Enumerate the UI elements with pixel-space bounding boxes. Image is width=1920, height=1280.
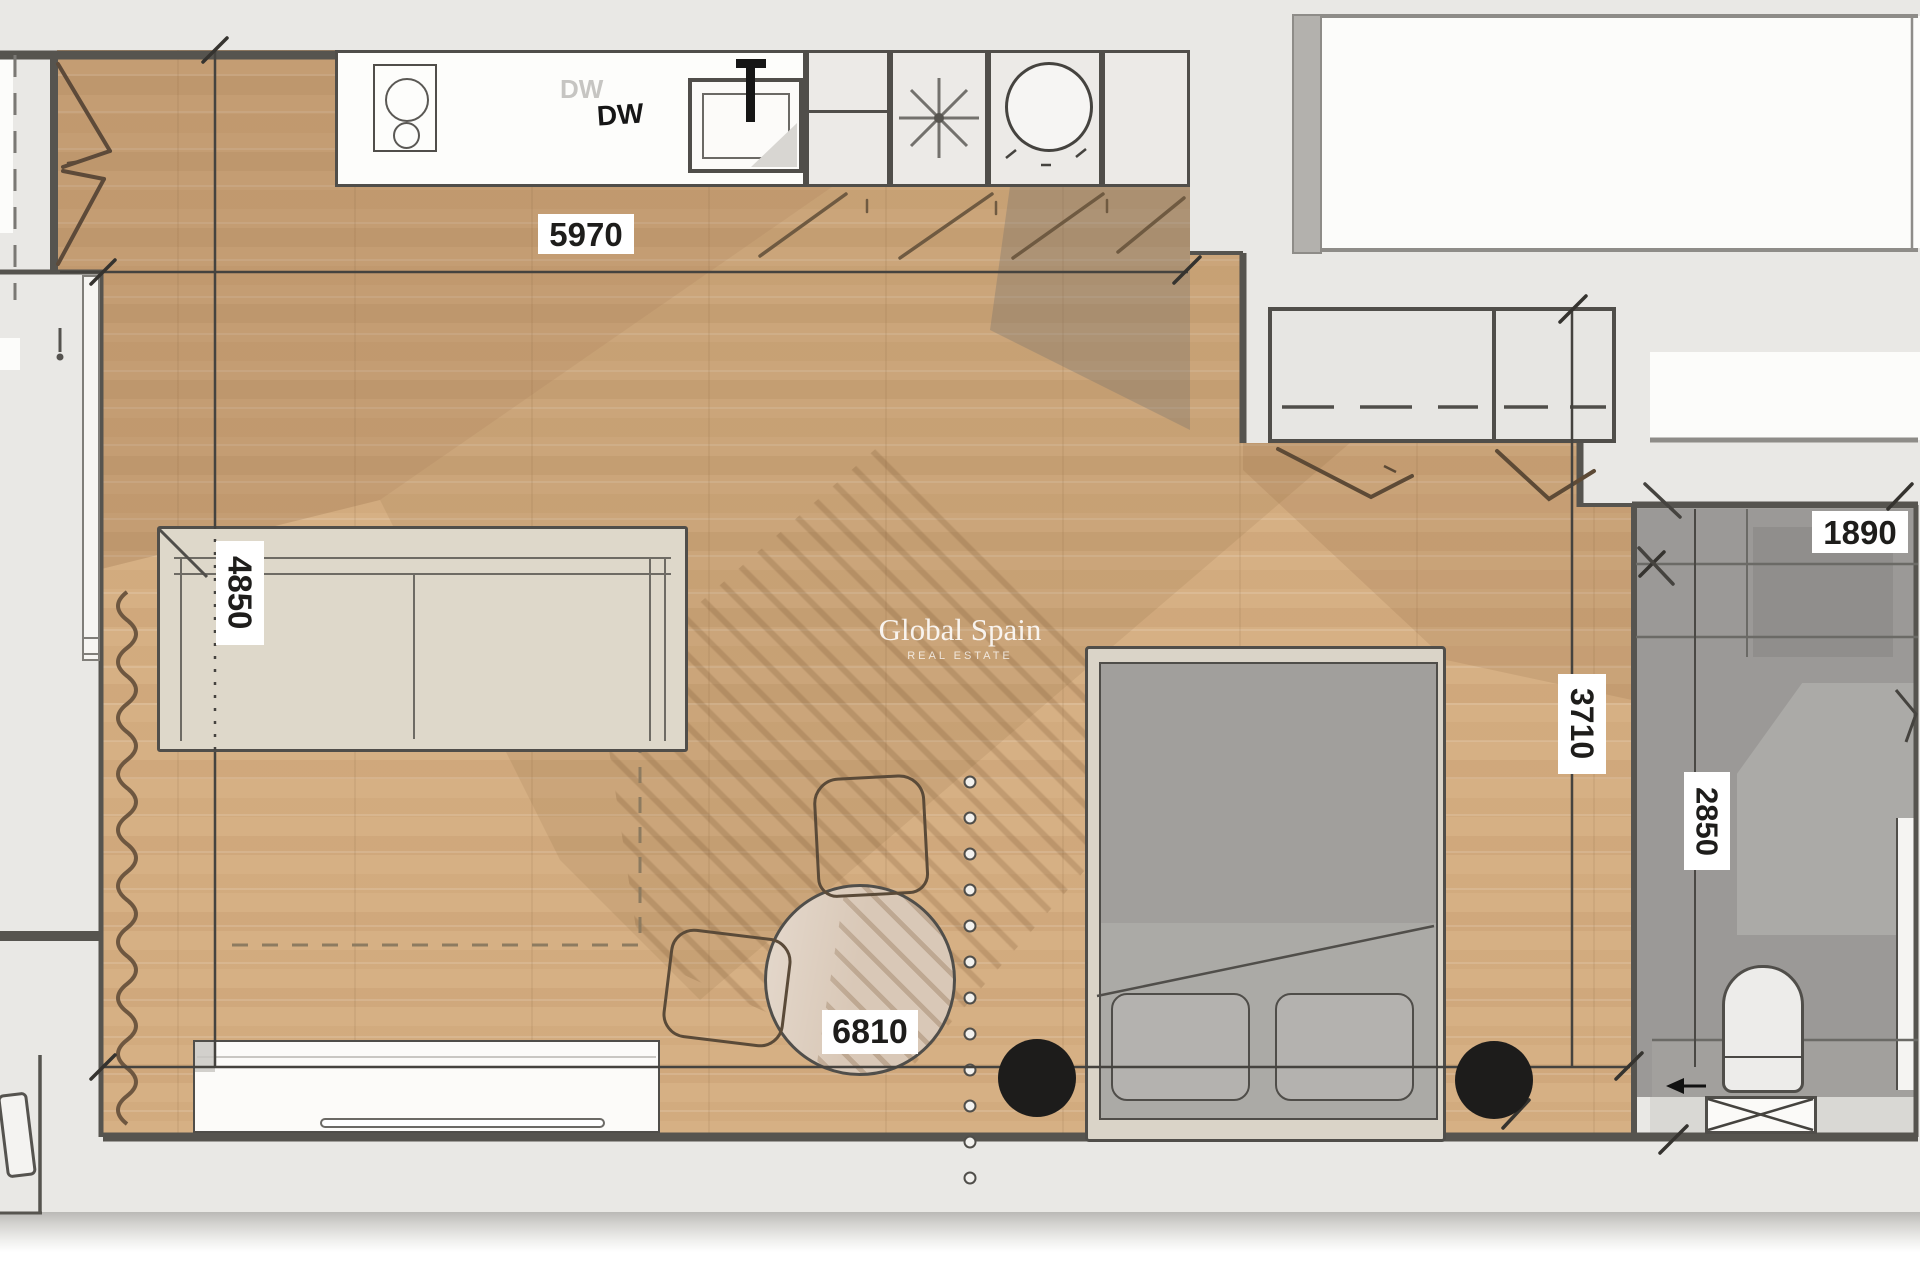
dimension-label-1890: 1890 [1812,511,1908,553]
dimension-label-4850: 4850 [216,541,264,645]
dimension-label-2850: 2850 [1684,772,1730,870]
dimension-label-6810: 6810 [822,1010,918,1054]
pouf-stool [1455,1041,1533,1119]
dimension-label-3710: 3710 [1558,674,1606,774]
floor-plan: 5970 4850 6810 3710 2850 1890 DW DW Glob… [0,0,1920,1280]
watermark-subtitle: REAL ESTATE [840,650,1080,662]
dishwasher-label: DW [596,97,645,132]
page-bottom-shadow [0,1212,1920,1252]
dimension-label-5970: 5970 [538,214,634,254]
pouf-stool [998,1039,1076,1117]
watermark: Global Spain REAL ESTATE [840,612,1080,662]
watermark-title: Global Spain [840,612,1080,648]
